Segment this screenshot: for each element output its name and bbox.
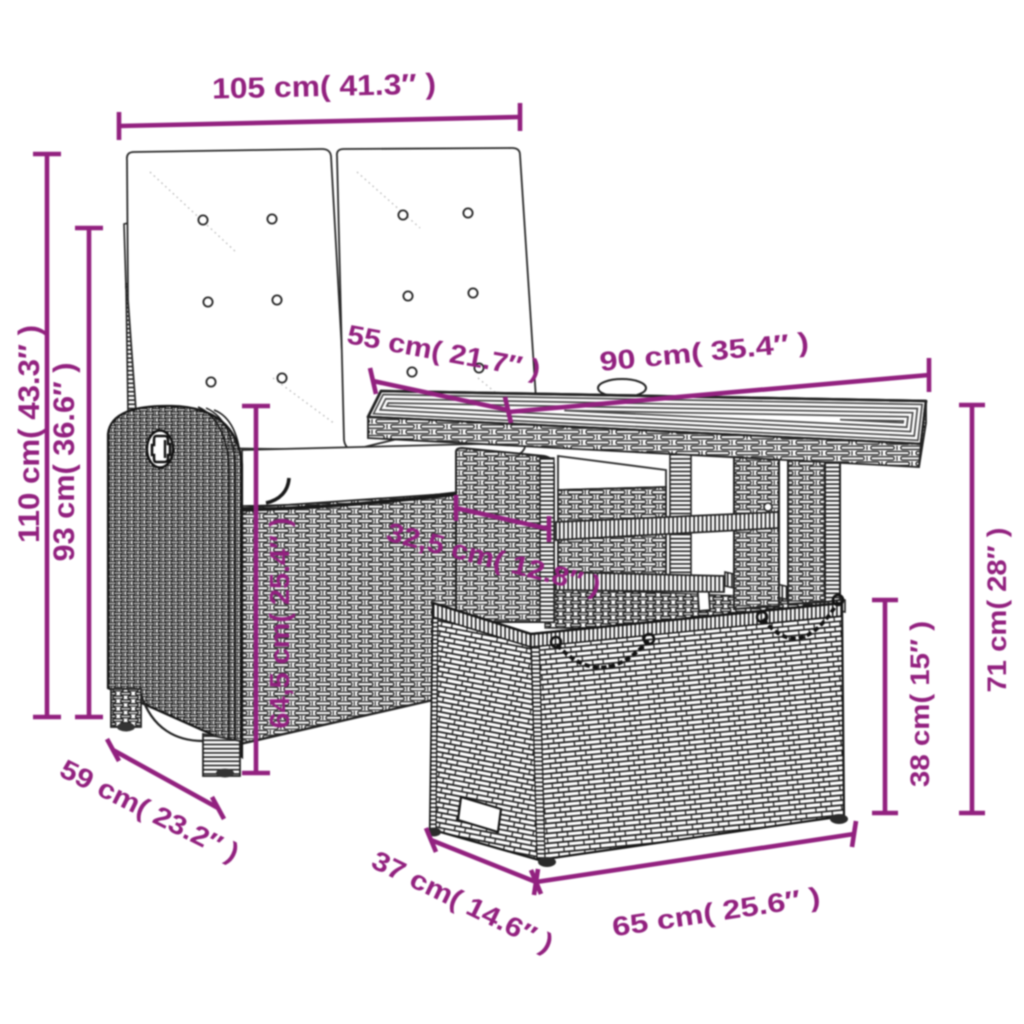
svg-text:110 cm( 43.3″ ): 110 cm( 43.3″ ) — [13, 325, 46, 543]
svg-text:38 cm( 15″ ): 38 cm( 15″ ) — [905, 621, 935, 787]
svg-text:64,5 cm( 25.4″ ): 64,5 cm( 25.4″ ) — [264, 518, 295, 729]
svg-text:71 cm( 28″ ): 71 cm( 28″ ) — [982, 528, 1012, 693]
svg-text:93 cm( 36.6″ ): 93 cm( 36.6″ ) — [48, 363, 81, 562]
svg-text:105 cm( 41.3″ ): 105 cm( 41.3″ ) — [212, 68, 437, 105]
